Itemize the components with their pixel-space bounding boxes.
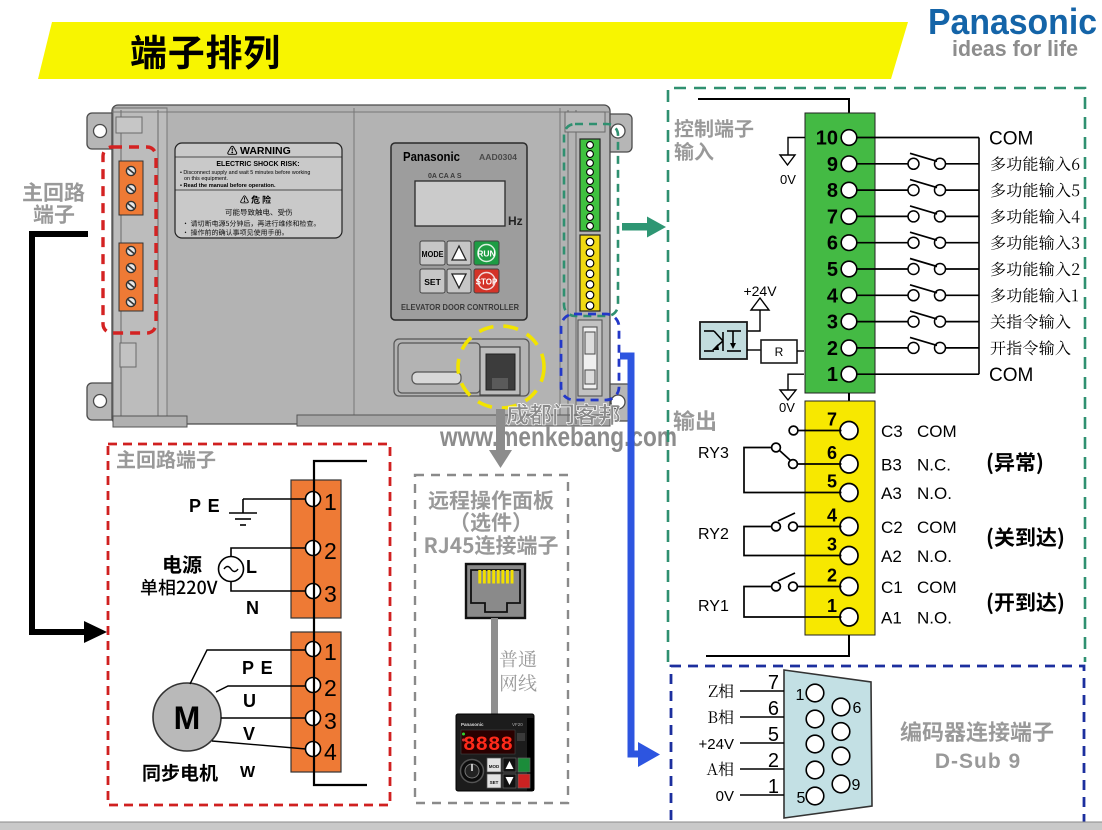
svg-text:RY3: RY3	[698, 445, 729, 462]
svg-text:M: M	[174, 700, 201, 736]
svg-text:7: 7	[768, 672, 779, 694]
svg-text:N.O.: N.O.	[917, 484, 952, 503]
svg-text:on this equipment.: on this equipment.	[184, 176, 228, 182]
svg-text:C2: C2	[881, 518, 903, 537]
svg-text:6: 6	[768, 698, 779, 720]
svg-text:+24V: +24V	[699, 736, 734, 753]
svg-text:3: 3	[827, 535, 837, 555]
svg-text:P E: P E	[189, 496, 221, 516]
svg-text:2: 2	[827, 566, 837, 586]
svg-text:1: 1	[827, 596, 837, 616]
svg-text:0A CA A S: 0A CA A S	[428, 173, 462, 180]
svg-text:SET: SET	[424, 277, 441, 287]
svg-text:N.C.: N.C.	[917, 456, 951, 475]
svg-text:AAD0304: AAD0304	[479, 152, 517, 162]
svg-text:6: 6	[827, 233, 838, 255]
svg-text:COM: COM	[917, 578, 957, 597]
svg-text:COM: COM	[989, 129, 1033, 150]
svg-text:9: 9	[827, 154, 838, 176]
svg-text:2: 2	[324, 675, 337, 701]
svg-text:0V: 0V	[779, 400, 795, 415]
svg-text:A3: A3	[881, 484, 902, 503]
svg-text:8: 8	[827, 180, 838, 202]
svg-text:Panasonic: Panasonic	[461, 722, 484, 727]
svg-text:B3: B3	[881, 456, 902, 475]
svg-text:C3: C3	[881, 422, 903, 441]
svg-text:4: 4	[324, 739, 337, 765]
svg-text:ideas for life: ideas for life	[952, 36, 1078, 61]
svg-text:7: 7	[827, 410, 837, 430]
svg-text:10: 10	[816, 128, 838, 150]
svg-text:RUN: RUN	[477, 249, 495, 259]
svg-text:6: 6	[827, 443, 837, 463]
svg-text:RY1: RY1	[698, 598, 729, 615]
svg-text:W: W	[240, 764, 256, 781]
svg-text:0V: 0V	[716, 788, 734, 805]
svg-text:P E: P E	[242, 658, 274, 678]
svg-text:COM: COM	[989, 365, 1033, 386]
svg-text:+24V: +24V	[743, 283, 777, 299]
svg-text:C1: C1	[881, 578, 903, 597]
svg-text:ELECTRIC SHOCK RISK:: ELECTRIC SHOCK RISK:	[216, 161, 299, 168]
svg-text:N: N	[246, 598, 259, 618]
svg-text:MODE: MODE	[422, 249, 444, 259]
svg-text:U: U	[243, 691, 256, 711]
svg-text:Panasonic: Panasonic	[403, 149, 460, 164]
svg-text:R: R	[775, 345, 784, 359]
svg-text:WARNING: WARNING	[240, 145, 291, 157]
svg-text:SET: SET	[490, 780, 499, 785]
svg-text:3: 3	[324, 581, 337, 607]
svg-text:8888: 8888	[463, 734, 513, 757]
svg-text:A2: A2	[881, 547, 902, 566]
svg-text:N.O.: N.O.	[917, 547, 952, 566]
svg-text:3: 3	[827, 312, 838, 334]
svg-text:0V: 0V	[780, 172, 796, 187]
svg-text:5: 5	[768, 724, 779, 746]
svg-text:2: 2	[768, 750, 779, 772]
svg-text:VF20: VF20	[512, 722, 523, 727]
svg-text:STOP: STOP	[476, 278, 498, 287]
svg-text:1: 1	[324, 639, 337, 665]
svg-text:2: 2	[827, 338, 838, 360]
svg-text:MOD: MOD	[489, 764, 500, 769]
svg-text:3: 3	[324, 708, 337, 734]
svg-text:7: 7	[827, 206, 838, 228]
svg-text:A1: A1	[881, 609, 902, 628]
svg-text:N.O.: N.O.	[917, 609, 952, 628]
svg-text:5: 5	[827, 472, 837, 492]
svg-text:D-Sub 9: D-Sub 9	[935, 750, 1021, 773]
svg-text:www.menkebang.com: www.menkebang.com	[439, 421, 677, 452]
svg-text:6: 6	[853, 700, 862, 717]
svg-text:V: V	[243, 724, 255, 744]
svg-text:1: 1	[827, 364, 838, 386]
svg-text:• Read the manual before opera: • Read the manual before operation.	[180, 183, 276, 189]
svg-text:5: 5	[827, 259, 838, 281]
svg-text:2: 2	[324, 538, 337, 564]
svg-text:1: 1	[324, 489, 337, 515]
svg-text:5: 5	[797, 790, 806, 807]
svg-text:L: L	[246, 557, 257, 577]
svg-text:COM: COM	[917, 518, 957, 537]
svg-text:RY2: RY2	[698, 526, 729, 543]
svg-text:4: 4	[827, 285, 839, 307]
svg-text:1: 1	[796, 687, 805, 704]
svg-text:1: 1	[768, 776, 779, 798]
svg-text:COM: COM	[917, 422, 957, 441]
svg-text:9: 9	[852, 777, 861, 794]
svg-text:Hz: Hz	[508, 214, 523, 228]
svg-text:4: 4	[827, 506, 837, 526]
svg-text:ELEVATOR DOOR CONTROLLER: ELEVATOR DOOR CONTROLLER	[401, 302, 519, 312]
